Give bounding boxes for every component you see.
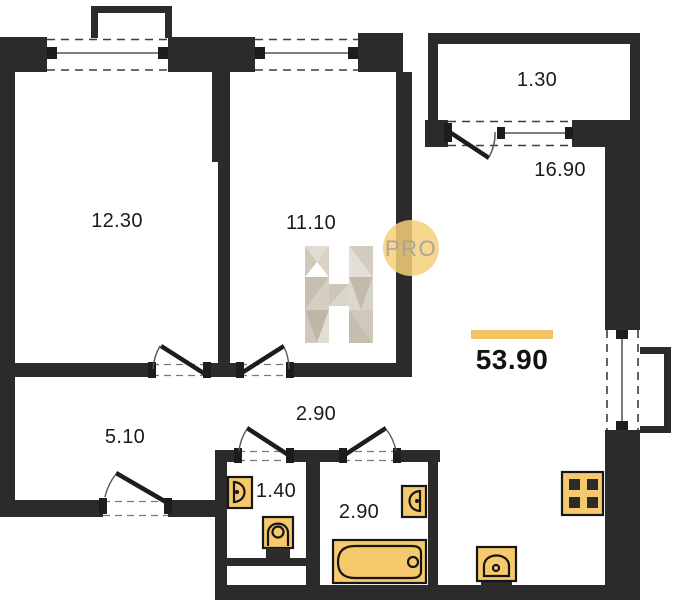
window-bedroom1 <box>47 40 168 71</box>
bathtub-icon <box>333 540 426 583</box>
door-entrance <box>99 473 172 516</box>
door-bedroom2 <box>236 346 294 378</box>
kitchen-sink-icon <box>477 547 516 587</box>
pro-badge-label: PRO <box>385 236 437 261</box>
room-label-bathroom: 2.90 <box>317 501 401 524</box>
total-area-block: 53.90 <box>459 330 565 376</box>
pro-badge: PRO <box>383 220 439 276</box>
door-bathroom <box>339 428 401 463</box>
floor-plan: PRO 12.30 11.10 1.30 16.90 5.10 2.90 1.4… <box>0 0 677 600</box>
stove-icon <box>562 472 603 515</box>
top-ledge-outline <box>95 10 169 39</box>
room-label-hallway: 5.10 <box>83 426 167 449</box>
bathroom-sink-icon <box>402 486 426 517</box>
door-bedroom1 <box>148 346 211 378</box>
window-bedroom2 <box>255 40 358 71</box>
window-living-room <box>607 330 638 430</box>
watermark: PRO <box>305 220 439 343</box>
room-label-bedroom1: 12.30 <box>75 210 159 233</box>
total-area-value: 53.90 <box>459 344 565 376</box>
room-label-corridor: 2.90 <box>274 403 358 426</box>
room-label-kitchen-living: 16.90 <box>518 159 602 182</box>
door-wc <box>234 428 294 463</box>
door-balcony <box>444 123 495 158</box>
watermark-letter-h <box>305 246 373 343</box>
toilet-icon <box>263 517 293 561</box>
room-label-wc: 1.40 <box>234 480 318 503</box>
right-ledge-outline <box>640 351 668 430</box>
room-label-bedroom2: 11.10 <box>269 212 353 235</box>
room-label-balcony: 1.30 <box>495 69 579 92</box>
total-area-accent-bar <box>471 330 553 339</box>
